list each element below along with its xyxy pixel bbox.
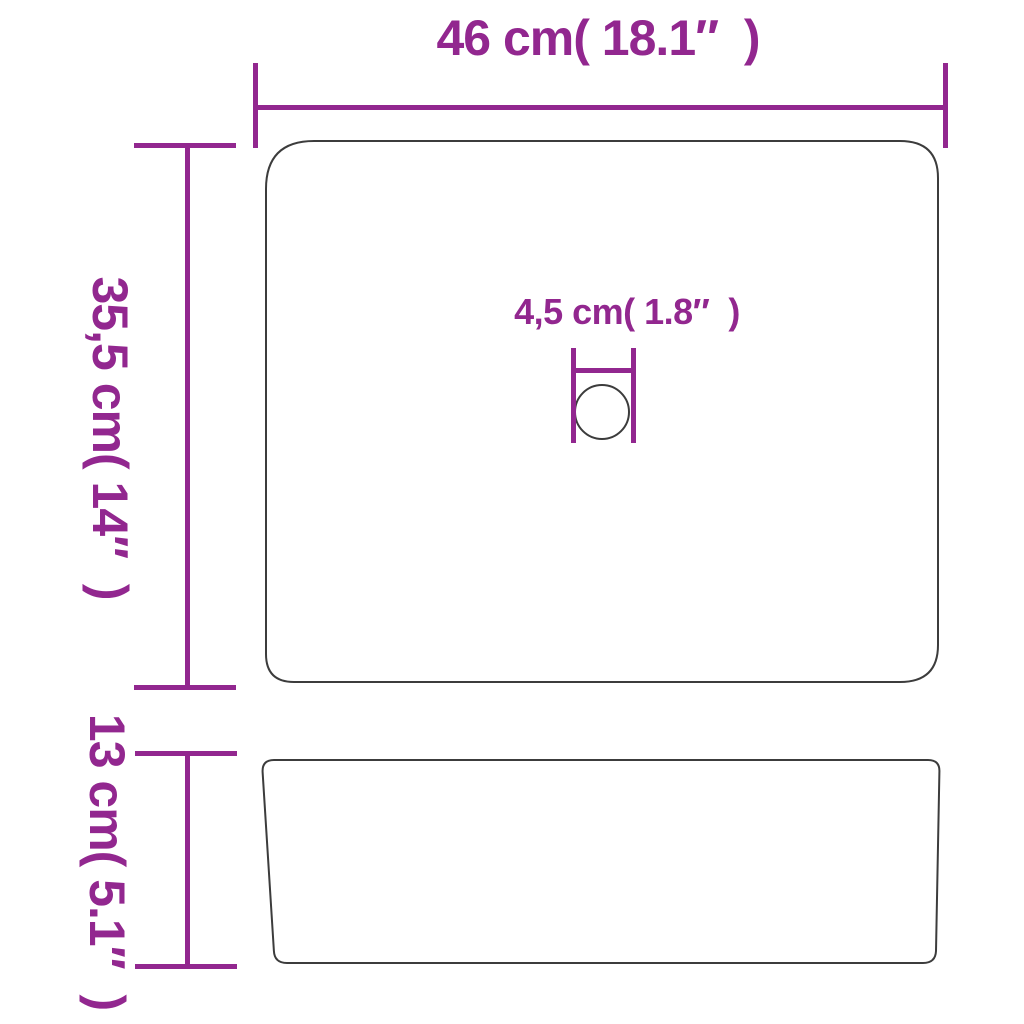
- drain-dimension-line: [571, 368, 636, 373]
- height-dimension-label: 13 cm( 5.1″ ): [82, 714, 132, 1010]
- height-dimension-tick-top: [135, 751, 237, 756]
- top-view-outline: [266, 141, 938, 682]
- dimension-diagram: 46 cm( 18.1″ ) 35,5 cm( 14″ ) 4,5 cm( 1.…: [0, 0, 1024, 1024]
- depth-dimension-label: 35,5 cm( 14″ ): [85, 276, 135, 599]
- width-dimension-tick-left: [253, 63, 258, 148]
- side-view-outline: [263, 760, 940, 963]
- width-dimension-tick-right: [943, 63, 948, 148]
- depth-dimension-line: [185, 145, 190, 688]
- drain-dimension-tick-right: [631, 348, 636, 443]
- drain-dimension-tick-left: [571, 348, 576, 443]
- drain-hole-outline: [575, 385, 629, 439]
- height-dimension-tick-bottom: [135, 964, 237, 969]
- width-dimension-label: 46 cm( 18.1″ ): [436, 13, 759, 63]
- width-dimension-line: [255, 105, 945, 110]
- drain-dimension-label: 4,5 cm( 1.8″ ): [514, 294, 740, 330]
- product-outline-layer: [0, 0, 1024, 1024]
- depth-dimension-tick-top: [134, 143, 236, 148]
- depth-dimension-tick-bottom: [134, 685, 236, 690]
- height-dimension-line: [185, 753, 190, 967]
